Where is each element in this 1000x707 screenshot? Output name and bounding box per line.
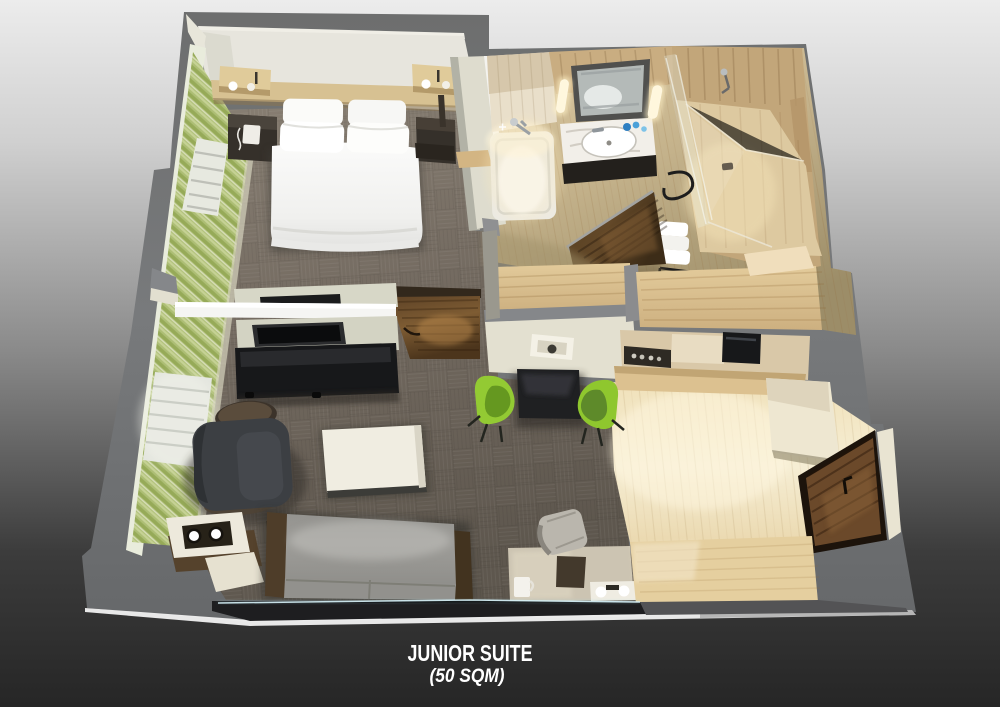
- svg-text:JUNIOR SUITE: JUNIOR SUITE: [408, 640, 533, 666]
- svg-text:(50 SQM): (50 SQM): [430, 666, 505, 687]
